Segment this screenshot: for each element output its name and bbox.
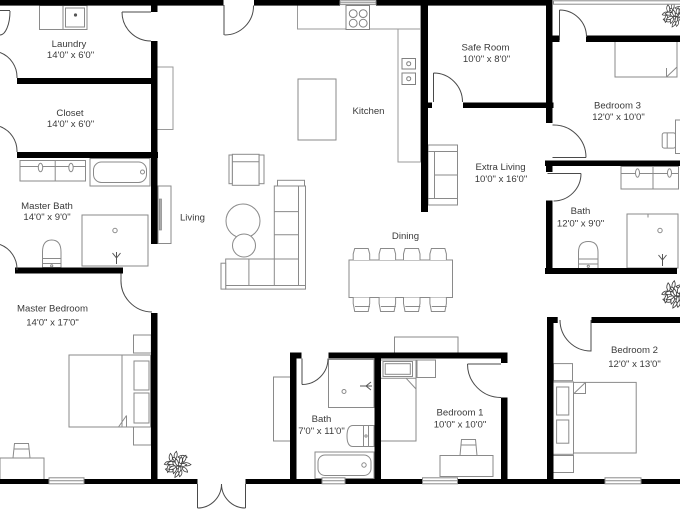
- svg-text:10'0" x 16'0": 10'0" x 16'0": [475, 174, 528, 185]
- svg-text:12'0" x 13'0": 12'0" x 13'0": [608, 359, 661, 370]
- svg-text:Safe Room: Safe Room: [462, 43, 510, 54]
- svg-text:10'0" x 10'0": 10'0" x 10'0": [434, 420, 487, 431]
- svg-text:Closet: Closet: [56, 108, 84, 119]
- svg-text:Extra Living: Extra Living: [475, 162, 525, 173]
- svg-text:12'0" x 10'0": 12'0" x 10'0": [592, 112, 645, 123]
- svg-text:Bedroom 2: Bedroom 2: [611, 345, 658, 356]
- svg-text:Master Bath: Master Bath: [21, 201, 73, 212]
- svg-text:14'0" x 17'0": 14'0" x 17'0": [26, 318, 79, 329]
- svg-text:Bedroom 1: Bedroom 1: [437, 408, 484, 419]
- svg-text:14'0" x 6'0": 14'0" x 6'0": [47, 119, 94, 130]
- svg-text:Master Bedroom: Master Bedroom: [17, 304, 88, 315]
- svg-text:14'0" x 6'0": 14'0" x 6'0": [47, 50, 94, 61]
- svg-text:12'0" x 9'0": 12'0" x 9'0": [557, 219, 604, 230]
- svg-text:7'0" x 11'0": 7'0" x 11'0": [298, 426, 345, 437]
- svg-text:Living: Living: [180, 213, 205, 224]
- svg-text:Bath: Bath: [571, 206, 591, 217]
- svg-text:10'0" x 8'0": 10'0" x 8'0": [463, 54, 510, 65]
- svg-text:Bath: Bath: [312, 414, 332, 425]
- svg-text:14'0" x 9'0": 14'0" x 9'0": [23, 212, 70, 223]
- svg-text:Bedroom 3: Bedroom 3: [594, 101, 641, 112]
- svg-text:Laundry: Laundry: [52, 39, 87, 50]
- svg-text:Dining: Dining: [392, 231, 419, 242]
- svg-text:Kitchen: Kitchen: [353, 106, 385, 117]
